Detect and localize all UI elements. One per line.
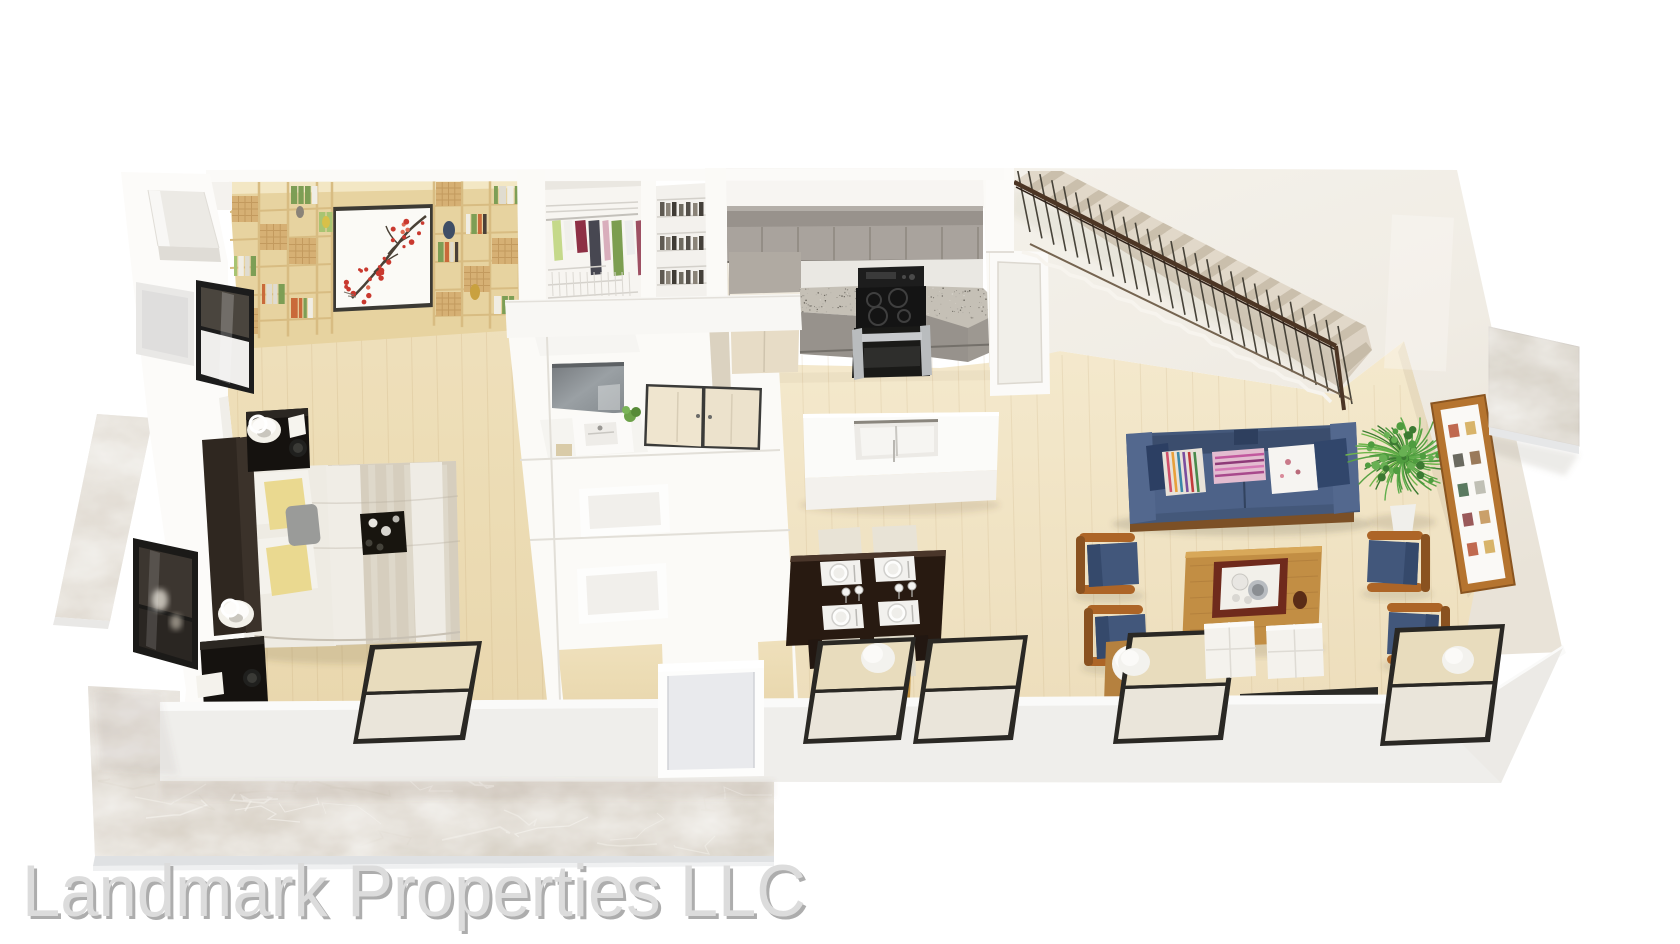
svg-text:Landmark Properties LLC: Landmark Properties LLC: [22, 851, 806, 932]
